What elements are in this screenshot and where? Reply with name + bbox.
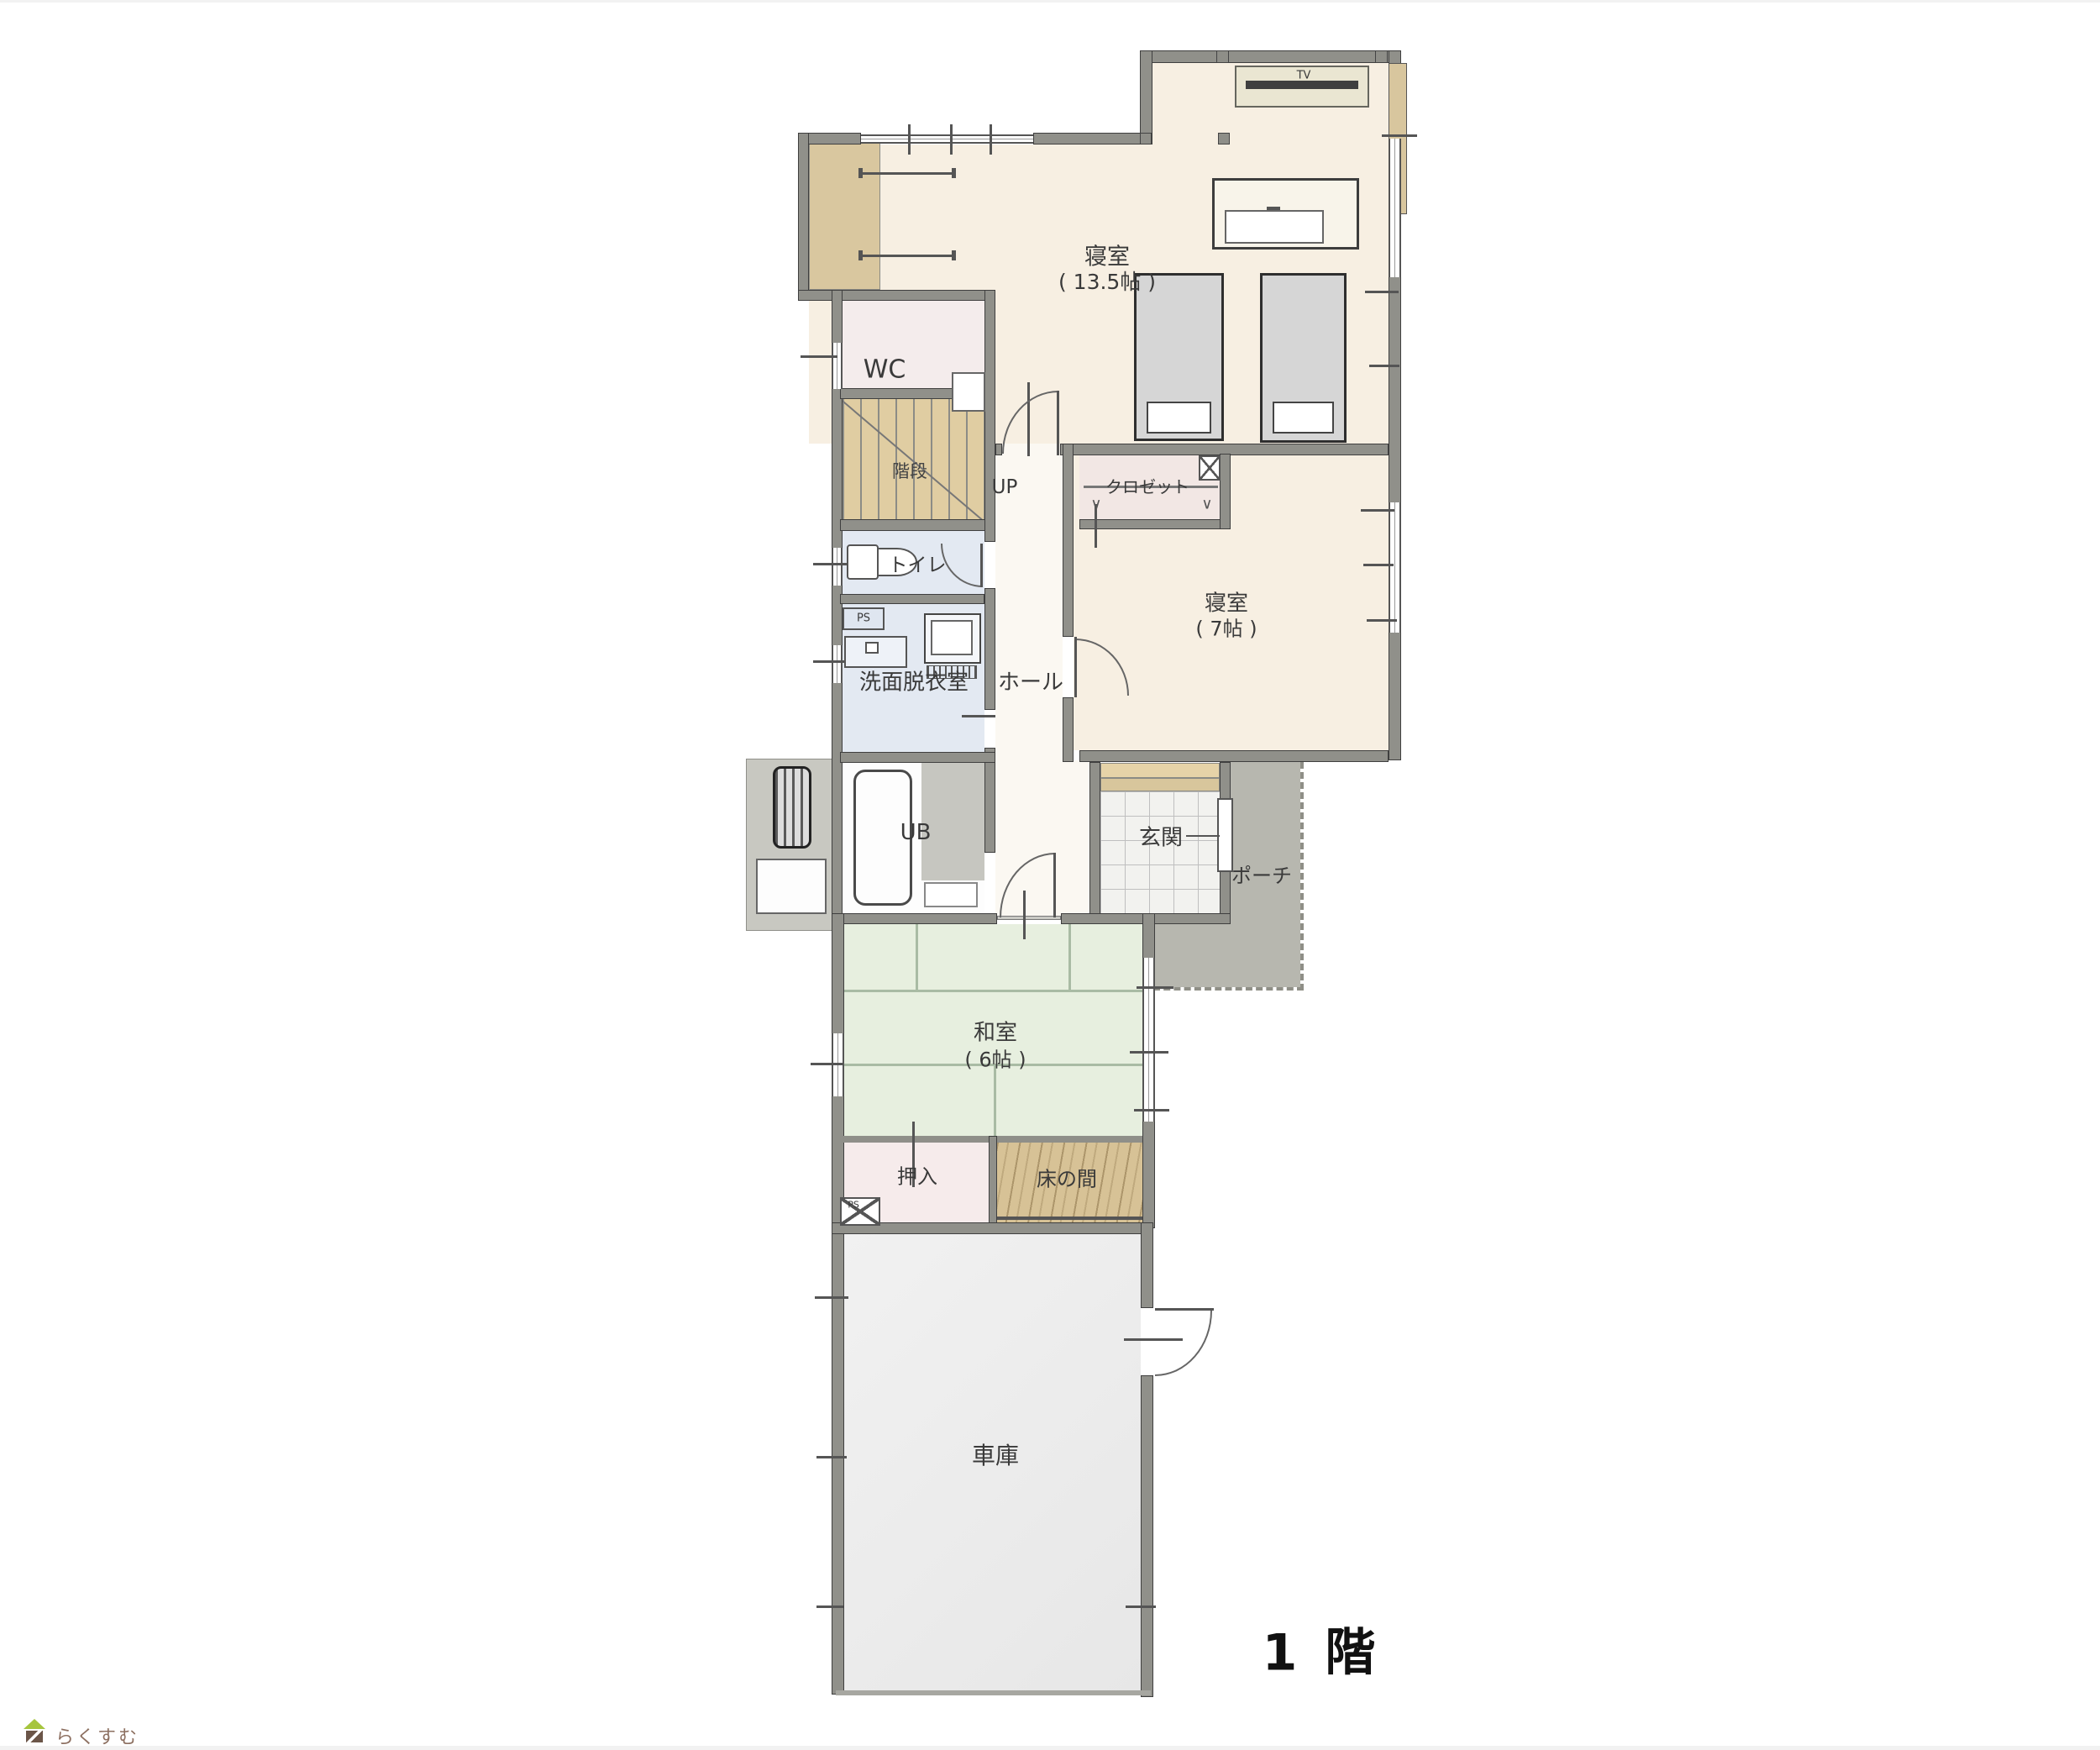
floor-title: 1 階	[1263, 1612, 1381, 1685]
door-leaf-toilet	[980, 544, 983, 587]
tick	[816, 1605, 843, 1608]
wall	[995, 444, 1002, 455]
bed-pillow	[1147, 402, 1211, 434]
door-leaf-bedroom-main	[1057, 391, 1059, 455]
house-icon	[24, 1719, 45, 1744]
label-porch: ポーチ	[1231, 859, 1292, 889]
tick	[908, 124, 911, 155]
window	[832, 343, 843, 389]
washing-machine-drum	[931, 620, 973, 655]
hanger-support-mark: ∨	[1090, 496, 1101, 513]
entrance-step-upper	[1100, 763, 1220, 778]
wall	[1220, 454, 1231, 529]
tick	[1367, 619, 1397, 622]
bath-mat	[924, 882, 978, 907]
door-leaf-garage	[1155, 1308, 1214, 1311]
pipe-space-box-lower	[840, 1197, 880, 1226]
wall	[798, 133, 809, 301]
tv-screen-bar	[1246, 81, 1358, 89]
utility-pad	[756, 859, 827, 914]
wall	[984, 588, 995, 710]
room-porch-lower	[1153, 916, 1222, 987]
wall	[1140, 50, 1401, 63]
label-oshiire: 押入	[897, 1160, 937, 1190]
tick	[962, 715, 995, 717]
window	[1389, 139, 1401, 277]
label-pipe-space-upper: PS	[857, 612, 870, 625]
tick	[813, 660, 847, 663]
window	[1142, 958, 1155, 1122]
garage-shutter-line	[836, 1690, 1151, 1695]
label-toilet: トイレ	[889, 549, 947, 577]
tick	[811, 1063, 844, 1065]
label-hall: ホール	[998, 665, 1063, 696]
door-arc-garage	[1155, 1311, 1212, 1376]
label-stairs: 階段	[892, 458, 927, 483]
wall	[1079, 519, 1231, 529]
floorplan-canvas: ∨ ∨ 寝室 ( 13.5帖 ) TV WC 階段 UP トイレ PS 洗面脱衣…	[0, 0, 2100, 1750]
house-icon-body	[26, 1731, 43, 1742]
porch-dashed-edge-right	[1300, 762, 1304, 991]
tick	[1363, 564, 1394, 566]
tick	[1369, 365, 1399, 367]
tatami-line	[1068, 924, 1071, 992]
wall	[1033, 133, 1151, 145]
tokonoma-edge	[997, 1217, 1142, 1220]
wall	[1141, 1222, 1153, 1308]
window	[1389, 502, 1401, 633]
wall	[984, 748, 995, 853]
tick	[1134, 1109, 1169, 1111]
tick	[1137, 986, 1173, 989]
toilet-tank	[847, 544, 879, 580]
window	[861, 134, 1033, 144]
page-edge-top	[0, 0, 2100, 3]
window	[832, 548, 843, 586]
label-tv: TV	[1297, 70, 1311, 82]
hanger-pole	[861, 255, 953, 257]
wall	[832, 913, 997, 924]
room-entrance	[1100, 791, 1220, 916]
wall	[832, 913, 844, 1695]
dresser-knob	[1267, 207, 1280, 210]
label-stairs-up: UP	[992, 476, 1018, 498]
hanger-pole-cap	[858, 168, 863, 178]
hanger-support-mark: ∨	[1201, 496, 1212, 513]
bed-pillow	[1273, 402, 1334, 434]
door-leaf-bath	[1053, 853, 1056, 917]
hanger-pole	[861, 172, 953, 175]
wall	[989, 1136, 997, 1228]
tick	[1126, 1605, 1156, 1608]
watermark: らくすむ	[24, 1719, 242, 1749]
wall	[840, 594, 984, 604]
bedroom-closet-strip	[809, 141, 880, 290]
tick	[801, 355, 837, 358]
tick	[1130, 1051, 1168, 1054]
entrance-step-lower	[1100, 778, 1220, 791]
wall	[1063, 444, 1074, 637]
wall	[1063, 697, 1074, 762]
tick	[1361, 509, 1394, 512]
tick	[990, 124, 992, 155]
water-heater-tank	[773, 766, 811, 849]
wall	[840, 752, 995, 763]
post	[1218, 133, 1230, 145]
wall	[1079, 750, 1389, 762]
wall	[984, 290, 995, 542]
label-japanese-room: 和室	[974, 1016, 1017, 1047]
tick	[1382, 134, 1417, 137]
wall	[840, 519, 995, 531]
label-bath: UB	[900, 820, 932, 845]
porch-dashed-edge-bottom	[1153, 987, 1304, 991]
tick	[815, 1296, 848, 1299]
post	[1140, 133, 1152, 145]
label-bedroom-second-size: ( 7帖 )	[1195, 612, 1257, 642]
closet-pipe-space	[1199, 455, 1221, 481]
page-edge-bottom	[0, 1746, 2100, 1750]
label-bedroom-main-size: ( 13.5帖 )	[1058, 265, 1156, 296]
tick	[816, 1456, 847, 1458]
label-garage: 車庫	[972, 1437, 1019, 1471]
wall	[1141, 1375, 1153, 1697]
label-washroom: 洗面脱衣室	[859, 665, 969, 696]
hanger-pole-cap	[858, 250, 863, 260]
wc-hand-basin	[952, 372, 985, 412]
label-pipe-space-lower: PS	[848, 1200, 859, 1211]
label-entrance: 玄関	[1139, 821, 1183, 852]
tick	[813, 563, 847, 565]
wall	[1140, 50, 1152, 145]
tatami-line	[843, 990, 1142, 992]
watermark-text: らくすむ	[55, 1722, 139, 1749]
tatami-line	[916, 924, 918, 992]
tatami-line	[994, 1064, 996, 1138]
door-leaf-bedroom-second	[1074, 637, 1077, 697]
hanger-pole-cap	[952, 250, 956, 260]
post	[1216, 50, 1229, 63]
wall	[798, 290, 995, 301]
wall	[1089, 762, 1100, 924]
label-tokonoma: 床の間	[1037, 1163, 1097, 1192]
entrance-leader-line	[1186, 835, 1220, 837]
dresser-drawer	[1225, 210, 1324, 244]
vanity-sink	[865, 642, 879, 654]
window	[832, 645, 843, 683]
tick	[950, 124, 953, 155]
house-icon-roof	[24, 1719, 45, 1729]
hanger-pole-cap	[952, 168, 956, 178]
post	[1375, 50, 1388, 63]
tick	[1365, 291, 1399, 293]
label-closet: クロゼット	[1105, 474, 1189, 498]
label-japanese-room-size: ( 6帖 )	[964, 1043, 1026, 1073]
label-wc: WC	[864, 355, 906, 385]
